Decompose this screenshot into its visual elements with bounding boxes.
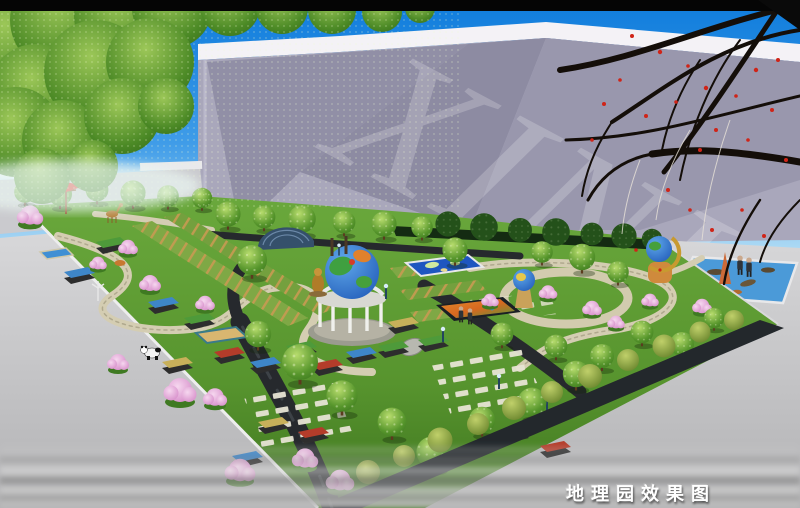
rendering-caption: 地理园效果图 (566, 480, 716, 506)
top-border-bar (0, 0, 800, 11)
fox-sculpture (115, 260, 126, 266)
garden-rendering-svg: XINK (0, 0, 800, 508)
rendering-canvas: XINK (0, 0, 800, 508)
